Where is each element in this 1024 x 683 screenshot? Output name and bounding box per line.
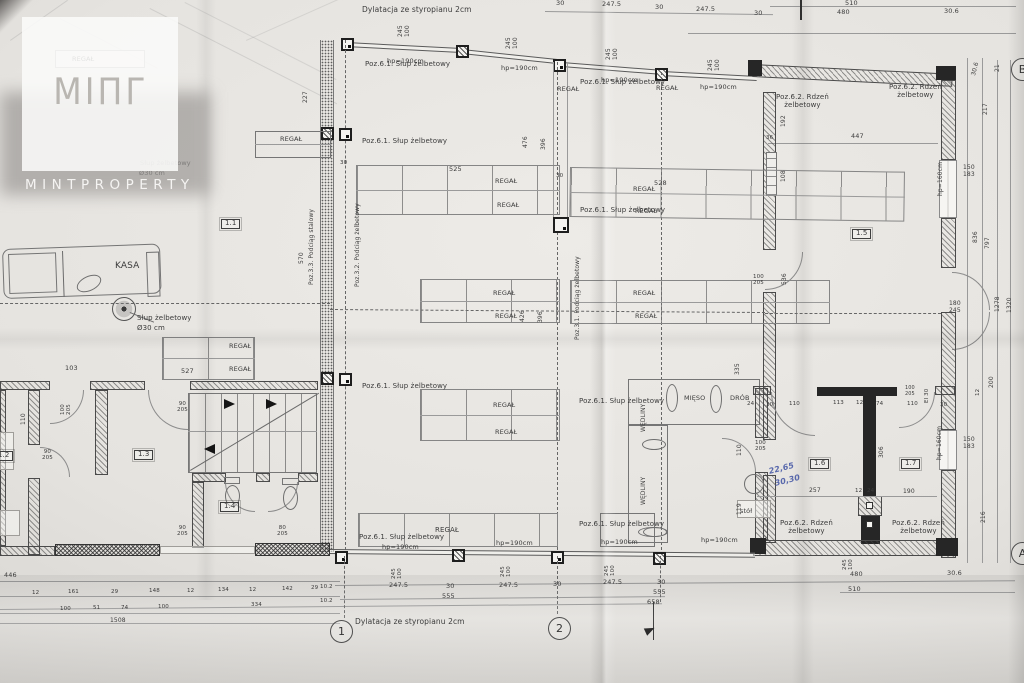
room-label: 1.5: [852, 229, 871, 239]
plan-label: 103: [65, 365, 78, 372]
plan-label: 247.5: [499, 582, 518, 589]
plan-label: 74: [121, 605, 128, 611]
floor-plan-photo: MIΠΓ MINTPROPERTY Dylatacja ze styropian…: [0, 0, 1024, 683]
plan-label: REGAŁ: [280, 136, 302, 143]
plan-label: REGAŁ: [497, 202, 519, 209]
plan-label: REGAŁ: [435, 527, 459, 535]
plan-label: 74: [876, 401, 883, 407]
room-label: 1.1: [221, 219, 240, 229]
plan-label: 30,30: [774, 474, 801, 489]
room-label: 1.3: [134, 450, 153, 460]
plan-label: 90 205: [42, 449, 53, 461]
plan-label: 335: [735, 363, 742, 375]
plan-label: 527: [181, 368, 194, 375]
plan-label: 245 100: [506, 37, 519, 49]
plan-label: 150 183: [963, 165, 975, 178]
plan-label: 217: [983, 103, 990, 115]
plan-label: 24: [867, 488, 874, 494]
plan-label: WĘDLINY: [641, 404, 648, 432]
plan-label: 30.6: [971, 62, 981, 77]
plan-label: 100: [158, 604, 169, 610]
plan-label: 100 205: [753, 274, 764, 286]
plan-label: 245 100: [604, 565, 616, 576]
plan-label: 100 205: [60, 404, 72, 415]
plan-label: 30: [556, 173, 563, 179]
plan-label: 257: [809, 488, 821, 495]
plan-label: 1320: [1007, 297, 1014, 313]
plan-label: hp=190cm: [496, 540, 533, 547]
plan-label: 1278: [995, 296, 1002, 312]
plan-label: 110: [907, 401, 918, 407]
room-label: 1.6: [810, 459, 829, 469]
brand-logo: MIΠΓ: [40, 70, 160, 113]
plan-label: REGAŁ: [635, 313, 657, 320]
plan-label: hp=190cm: [601, 539, 638, 546]
plan-label: Poz.6.2. Rdzeń żelbetowy: [780, 520, 833, 536]
plan-label: 510: [845, 0, 858, 7]
plan-label: 30: [655, 4, 663, 11]
plan-label: 30: [754, 10, 762, 17]
plan-label: 30: [657, 579, 665, 586]
plan-label: 90 205: [177, 525, 188, 537]
plan-label: 192: [781, 115, 788, 127]
plan-label: hp=160cm: [937, 426, 944, 460]
plan-label: REGAŁ: [656, 85, 678, 92]
plan-label: 80 205: [277, 525, 288, 537]
plan-label: Poz.6.1. Słup żelbetowy: [362, 138, 447, 146]
plan-label: Poz.6.1. Słup żelbetowy: [580, 207, 665, 215]
plan-label: Poz.6.2. Rdzeń żelbetowy: [889, 84, 942, 100]
plan-label: Poz.6.2. Rdzeń żelbetowy: [892, 520, 945, 536]
brand-name: MINTPROPERTY: [25, 177, 195, 193]
plan-label: 190: [903, 489, 915, 496]
plan-label: 528: [654, 180, 667, 187]
plan-label: 525: [449, 166, 462, 173]
plan-label: 245 100: [606, 48, 619, 60]
plan-label: Poz.6.1. Słup żelbetowy: [362, 383, 447, 391]
plan-label: 1508: [110, 618, 126, 625]
plan-label: 480: [837, 9, 850, 16]
plan-label: 555: [653, 589, 666, 596]
plan-label: REGAŁ: [229, 366, 251, 373]
plan-label: 134: [218, 587, 229, 593]
plan-label: 227: [303, 91, 310, 103]
plan-label: hp=190cm: [382, 544, 419, 551]
plan-label: 110: [737, 444, 744, 456]
plan-label: 216: [981, 511, 988, 523]
plan-label: 245 100: [708, 59, 721, 71]
plan-label: 30: [553, 581, 561, 588]
plan-label: 30: [340, 160, 347, 166]
grid-marker-2: 2: [548, 617, 571, 640]
plan-label: 797: [985, 237, 992, 249]
plan-label: 245 100: [500, 566, 512, 577]
plan-label: Poz.6.1. Słup żelbetowy: [580, 79, 665, 87]
plan-label: 836: [973, 231, 980, 243]
plan-label: 12: [855, 488, 862, 494]
plan-label: WĘDLINY: [641, 477, 648, 505]
plan-label: Dylatacja ze styropianu 2cm: [355, 618, 465, 626]
plan-label: 180 245: [949, 301, 961, 314]
room-label: 1.4: [220, 502, 239, 512]
plan-label: REGAŁ: [633, 186, 655, 193]
plan-label: 21: [995, 64, 1002, 72]
plan-label: 247.5: [602, 1, 621, 8]
plan-label: Ø30 cm: [137, 325, 165, 333]
plan-label: Poz.6.1. Słup żelbetowy: [579, 398, 664, 406]
plan-label: 426: [520, 310, 527, 322]
plan-label: 396: [541, 138, 548, 150]
plan-label: 110: [789, 401, 800, 407]
plan-label: 396: [538, 311, 545, 323]
plan-label: Poz.3.3. Podciąg stalowy: [309, 209, 316, 285]
plan-label: 476: [523, 136, 530, 148]
plan-label: 100 205: [905, 386, 915, 397]
plan-label: Poz.3.2. Podciąg żelbetowy: [355, 203, 362, 287]
plan-label: Dylatacja ze styropianu 2cm: [362, 6, 472, 14]
room-label: 1.7: [901, 459, 920, 469]
plan-label: Poz.3.1. Podciąg żelbetowy: [575, 256, 582, 340]
plan-label: REGAŁ: [557, 86, 579, 93]
plan-label: 29: [311, 585, 318, 591]
plan-label: 10.2: [320, 598, 333, 604]
plan-label: EI 30: [924, 389, 930, 403]
plan-label: 29: [111, 589, 118, 595]
plan-label: 334: [251, 602, 262, 608]
plan-label: 30.6: [944, 8, 959, 15]
plan-label: 10.2: [320, 584, 333, 590]
plan-label: 200: [989, 376, 996, 388]
plan-label: 100: [60, 606, 71, 612]
plan-label: REGAŁ: [493, 402, 515, 409]
plan-label: 12: [187, 588, 194, 594]
plan-label: 30.6: [947, 570, 962, 577]
plan-label: Poz.6.1. Słup żelbetowy: [579, 521, 664, 529]
plan-label: hp=190cm: [701, 537, 738, 544]
plan-label: 30: [940, 402, 947, 408]
plan-label: 90 205: [177, 401, 188, 413]
plan-label: MIĘSO: [684, 395, 705, 402]
plan-label: 12: [856, 400, 863, 406]
plan-label: 12: [975, 389, 981, 396]
plan-label: 555: [442, 593, 455, 600]
plan-label: 36: [766, 135, 773, 141]
plan-label: 306: [879, 446, 886, 458]
plan-label: 12: [32, 590, 39, 596]
plan-label: 24: [747, 401, 754, 407]
plan-label: 108: [781, 170, 788, 182]
grid-marker-A: A: [1011, 542, 1024, 565]
plan-label: Słup żelbetowy: [137, 315, 192, 323]
plan-label: KASA: [115, 261, 139, 271]
plan-label: 247.5: [603, 579, 622, 586]
plan-label: 510: [848, 586, 861, 593]
room-label: 1.2: [0, 451, 13, 461]
plan-label: 30: [556, 0, 564, 7]
plan-label: REGAŁ: [493, 290, 515, 297]
plan-label: 447: [851, 133, 864, 140]
plan-label: 150 183: [963, 437, 975, 450]
grid-marker-B: B: [1011, 58, 1024, 81]
grid-marker-1: 1: [330, 620, 353, 643]
plan-label: 245 100: [398, 25, 411, 37]
plan-label: 247.5: [696, 6, 715, 13]
plan-label: 30: [446, 583, 454, 590]
plan-label: 148: [149, 588, 160, 594]
plan-label: Poz.6.1. Słup żelbetowy: [359, 534, 444, 542]
plan-label: REGAŁ: [495, 429, 517, 436]
plan-label: hp=190cm: [501, 65, 538, 72]
plan-label: hp=160cm: [938, 162, 945, 196]
plan-label: 658: [647, 599, 660, 606]
plan-label: 142: [282, 586, 293, 592]
plan-label: 245 100: [842, 559, 854, 570]
plan-label: 12: [249, 587, 256, 593]
plan-label: 247.5: [389, 582, 408, 589]
plan-label: Poz.6.1. Słup żelbetowy: [365, 61, 450, 69]
plan-label: REGAŁ: [495, 313, 517, 320]
plan-label: 536: [782, 273, 789, 285]
plan-label: 245 100: [391, 568, 403, 579]
plan-label: 480: [850, 571, 863, 578]
plan-label: 119: [737, 503, 744, 515]
plan-label: REGAŁ: [633, 290, 655, 297]
plan-label: REGAŁ: [495, 178, 517, 185]
plan-label: 570: [299, 252, 306, 264]
plan-label: 51: [93, 605, 100, 611]
plan-label: REGAŁ: [229, 343, 251, 350]
plan-label: Poz.6.2. Rdzeń żelbetowy: [776, 94, 829, 110]
plan-label: hp=190cm: [700, 84, 737, 91]
plan-label: 30: [766, 402, 773, 408]
plan-label: 113: [833, 400, 844, 406]
plan-label: 446: [4, 572, 17, 579]
plan-label: 110: [21, 413, 28, 425]
plan-label: 161: [68, 589, 79, 595]
plan-label: 100 205: [755, 440, 766, 452]
